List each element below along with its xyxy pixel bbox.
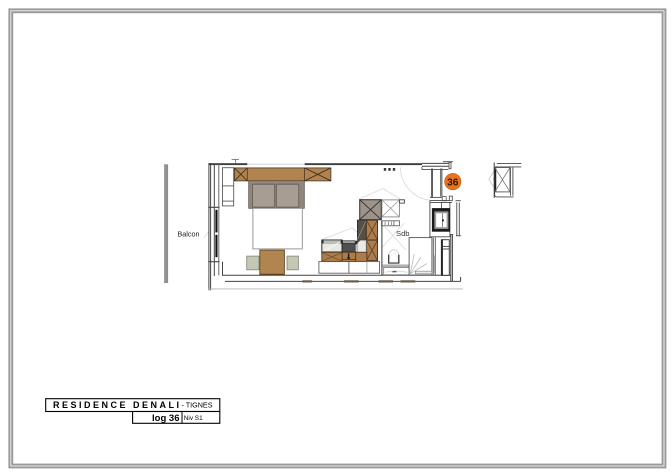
svg-text:Sdb: Sdb [396, 229, 410, 238]
svg-text:RESIDENCE DENALI: RESIDENCE DENALI [53, 400, 182, 410]
svg-text:Balcon: Balcon [178, 229, 200, 238]
svg-text:log 36: log 36 [152, 413, 179, 424]
svg-text:Niv S1: Niv S1 [184, 415, 203, 422]
svg-text:- TIGNES: - TIGNES [182, 400, 213, 409]
svg-text:36: 36 [447, 177, 459, 188]
